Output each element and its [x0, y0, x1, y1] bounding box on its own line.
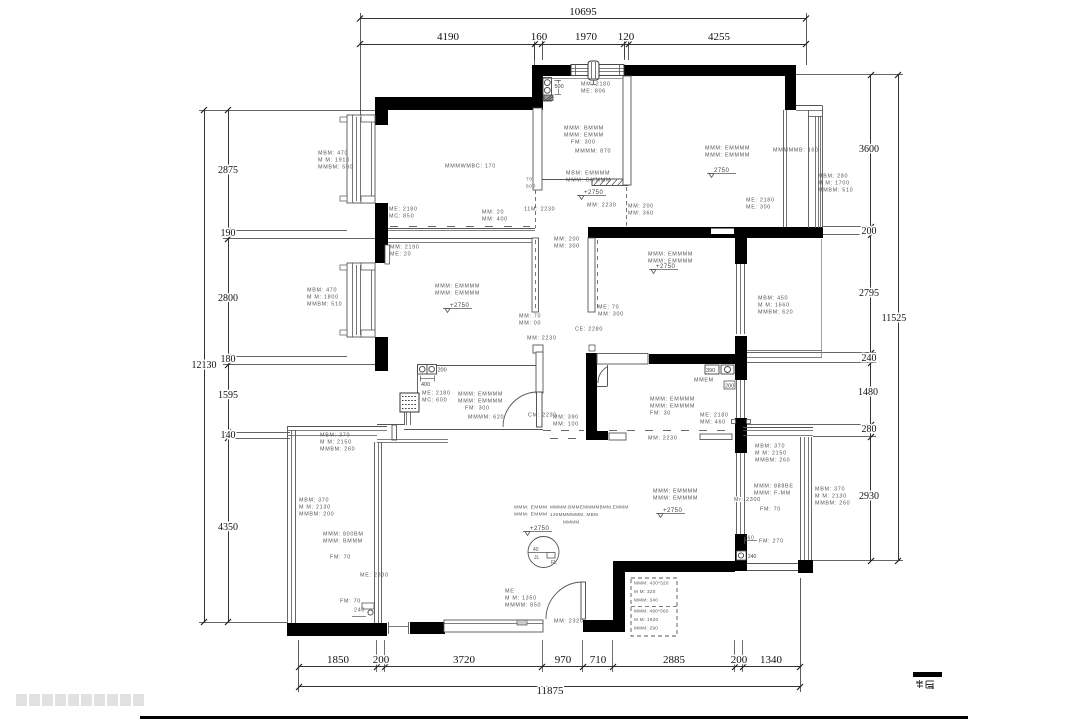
svg-text:MMEM: MMEM: [694, 377, 714, 383]
svg-text:M M: 2150: M M: 2150: [755, 451, 787, 457]
svg-text:MMM: EMMM: MMM: EMMM: [514, 504, 547, 510]
svg-text:M M: 1700: M M: 1700: [818, 181, 850, 187]
svg-text:600: 600: [526, 183, 536, 189]
svg-text:MM: 20: MM: 20: [482, 209, 504, 215]
svg-text:ME: 2180: ME: 2180: [700, 412, 729, 418]
svg-text:MBM: 370: MBM: 370: [299, 497, 329, 503]
svg-text:MMBM: 620: MMBM: 620: [758, 310, 793, 316]
svg-text:M M: 2130: M M: 2130: [815, 494, 847, 500]
svg-text:MMM: EMMM: MMM: EMMM: [564, 133, 604, 139]
svg-text:MMM: 490*360: MMM: 490*360: [634, 608, 669, 613]
svg-text:M M: 2150: M M: 2150: [320, 440, 352, 446]
svg-text:MBM: 370: MBM: 370: [815, 486, 845, 492]
svg-text:500: 500: [555, 84, 564, 90]
svg-text:70: 70: [526, 176, 533, 182]
svg-text:MMBM: 510: MMBM: 510: [818, 188, 853, 194]
svg-text:4190: 4190: [437, 31, 460, 43]
svg-text:390: 390: [706, 368, 715, 374]
svg-text:12130: 12130: [192, 360, 217, 371]
svg-text:M M: 1800: M M: 1800: [307, 295, 339, 301]
svg-text:MMM: BMMMM: MMM: BMMMM: [566, 178, 611, 184]
svg-text:11875: 11875: [536, 685, 564, 697]
svg-text:4255: 4255: [708, 31, 731, 43]
svg-text:MC: 600: MC: 600: [422, 398, 447, 404]
svg-text:ME: 2330: ME: 2330: [360, 572, 389, 578]
svg-text:MMBM: 200: MMBM: 200: [299, 512, 334, 518]
svg-text:MBM: 280: MBM: 280: [818, 173, 848, 179]
svg-text:MBM: 370: MBM: 370: [320, 432, 350, 438]
svg-text:ME: 2180: ME: 2180: [389, 206, 418, 212]
svg-text:3600: 3600: [859, 144, 879, 155]
svg-text:970: 970: [555, 654, 572, 666]
svg-text:MMM: EMMMM: MMM: EMMMM: [650, 404, 695, 410]
svg-text:4350: 4350: [218, 522, 238, 533]
svg-text:MMM: EMMMM: MMM: EMMMM: [458, 391, 503, 397]
svg-text:MMM: BMMM: MMM: BMMM: [564, 125, 604, 131]
svg-text:180: 180: [221, 354, 236, 365]
svg-text:MMM: 888BE: MMM: 888BE: [754, 483, 794, 489]
svg-text:MMMM: 620: MMMM: 620: [468, 414, 504, 420]
svg-text:2875: 2875: [218, 165, 238, 176]
svg-text:710: 710: [590, 654, 607, 666]
svg-text:M M: 1350: M M: 1350: [505, 596, 537, 602]
svg-text:FL: FL: [551, 560, 557, 566]
svg-text:FM: 300: FM: 300: [571, 139, 596, 145]
svg-text:MM: 300: MM: 300: [554, 244, 580, 250]
svg-text:160: 160: [531, 31, 548, 43]
svg-text:MMM: BMMM: MMM: BMMM: [323, 539, 363, 545]
svg-text:1595: 1595: [218, 390, 238, 401]
svg-text:MBM: 370: MBM: 370: [755, 443, 785, 449]
svg-text:120: 120: [618, 31, 635, 43]
svg-text:FM: 300: FM: 300: [465, 405, 490, 411]
svg-text:2800: 2800: [218, 293, 238, 304]
svg-text:FM: 270: FM: 270: [759, 538, 784, 544]
svg-text:MMMM: 850: MMMM: 850: [505, 603, 541, 609]
svg-text:MMM: EMMM: MMM: EMMM: [514, 512, 547, 518]
svg-text:3720: 3720: [453, 654, 476, 666]
svg-text:MMM: EMMMM: MMM: EMMMM: [650, 396, 695, 402]
svg-text:2885: 2885: [663, 654, 686, 666]
svg-text:MM: 400: MM: 400: [482, 217, 508, 223]
svg-text:MMM: EMMMM: MMM: EMMMM: [435, 283, 480, 289]
svg-text:MMM: F-MM: MMM: F-MM: [754, 491, 791, 497]
svg-text:MMBM: 260: MMBM: 260: [320, 447, 355, 453]
svg-text:MM: 00: MM: 00: [519, 321, 541, 327]
svg-text:200: 200: [862, 226, 877, 237]
svg-text:MMM: EMMMM: MMM: EMMMM: [435, 291, 480, 297]
svg-text:MM: 460: MM: 460: [700, 420, 726, 426]
svg-text:Mr: 2300: Mr: 2300: [734, 497, 761, 503]
svg-text:MM: 200: MM: 200: [628, 203, 654, 209]
svg-text:240: 240: [354, 607, 365, 613]
svg-text:ME: 806: ME: 806: [581, 89, 606, 95]
svg-text:CE: 2280: CE: 2280: [575, 326, 603, 332]
svg-text:MMM: EMMMM: MMM: EMMMM: [653, 496, 698, 502]
svg-text:MMBM: 500: MMBM: 500: [318, 165, 353, 171]
svg-text:200: 200: [438, 368, 447, 374]
svg-text:200: 200: [725, 384, 734, 390]
svg-text:240: 240: [748, 554, 757, 560]
svg-text:MM: 2320: MM: 2320: [554, 618, 584, 624]
svg-text:ME: 70: ME: 70: [598, 304, 619, 310]
svg-text:ME: 2180: ME: 2180: [746, 197, 775, 203]
svg-text:MM: 100: MM: 100: [553, 422, 579, 428]
svg-text:M M: 1910: M M: 1910: [318, 158, 350, 164]
svg-text:400: 400: [421, 382, 430, 388]
svg-text:M M: 1920: M M: 1920: [634, 617, 659, 622]
svg-text:MM: 2190: MM: 2190: [390, 244, 420, 250]
svg-text:MMM: 800BM: MMM: 800BM: [323, 531, 364, 537]
svg-text:2930: 2930: [859, 491, 879, 502]
svg-text:MMBM: 510: MMBM: 510: [307, 302, 342, 308]
svg-text:280: 280: [862, 424, 877, 435]
svg-text:260: 260: [744, 535, 754, 541]
svg-text:MM: 70: MM: 70: [519, 313, 541, 319]
svg-text:11M: 2230: 11M: 2230: [524, 206, 555, 212]
svg-text:MMM: EMMMM: MMM: EMMMM: [705, 145, 750, 151]
svg-text:MBM: EMMMM: MBM: EMMMM: [566, 170, 610, 176]
svg-text:MMMWMBC: 170: MMMWMBC: 170: [445, 163, 496, 169]
svg-text:FM: 70: FM: 70: [340, 598, 361, 604]
svg-text:ME: 2180: ME: 2180: [422, 390, 451, 396]
svg-text:M M: 1660: M M: 1660: [758, 303, 790, 309]
svg-text:130MMMMMM, MBM: 130MMMMMM, MBM: [550, 512, 598, 517]
svg-text:MBM: 450: MBM: 450: [758, 295, 788, 301]
svg-text:MBM: 470: MBM: 470: [318, 150, 348, 156]
svg-text:M M: 2130: M M: 2130: [299, 505, 331, 511]
svg-text:1850: 1850: [327, 654, 350, 666]
svg-text:MMM: EMMMM: MMM: EMMMM: [458, 399, 503, 405]
svg-text:MM: 2230: MM: 2230: [527, 335, 557, 341]
svg-text:MM: 360: MM: 360: [628, 211, 654, 217]
svg-text:MMM: EMMMM: MMM: EMMMM: [653, 488, 698, 494]
svg-text:40: 40: [533, 547, 539, 553]
svg-text:JL: JL: [534, 555, 540, 561]
svg-text:MMM: 430*320: MMM: 430*320: [634, 580, 669, 585]
svg-text:200: 200: [373, 654, 390, 666]
svg-text:MM: 2230: MM: 2230: [587, 202, 617, 208]
svg-text:MMMM: 870: MMMM: 870: [575, 148, 611, 154]
svg-text:1970: 1970: [575, 31, 598, 43]
svg-text:2795: 2795: [859, 288, 879, 299]
svg-text:ME: ME: [505, 588, 515, 594]
svg-text:MMM: EMMMM: MMM: EMMMM: [705, 153, 750, 159]
svg-text:FM: 70: FM: 70: [760, 506, 781, 512]
svg-text:ME: 20: ME: 20: [390, 252, 411, 258]
svg-text:MM: 2180: MM: 2180: [581, 81, 611, 87]
svg-text:MBM: 470: MBM: 470: [307, 287, 337, 293]
svg-text:MM: 300: MM: 300: [598, 312, 624, 318]
svg-text:MMMMMB: 160: MMMMMB: 160: [773, 147, 819, 153]
svg-text:FM: 70: FM: 70: [330, 554, 351, 560]
svg-text:MC: 850: MC: 850: [389, 214, 414, 220]
svg-text:MM: 390: MM: 390: [553, 414, 579, 420]
svg-text:200: 200: [731, 654, 748, 666]
svg-text:ME: 300: ME: 300: [746, 205, 771, 211]
svg-text:MMBM: 260: MMBM: 260: [755, 458, 790, 464]
svg-text:FM: 30: FM: 30: [650, 411, 671, 417]
svg-text:MMM: EMMMM: MMM: EMMMM: [648, 251, 693, 257]
svg-text:190: 190: [221, 228, 236, 239]
svg-text:10695: 10695: [569, 6, 597, 18]
svg-text:MMBM: 260: MMBM: 260: [815, 501, 850, 507]
svg-text:1340: 1340: [760, 654, 783, 666]
svg-text:1480: 1480: [858, 387, 878, 398]
svg-text:MMMM:BMMEMMMMBMM,EMMM: MMMM:BMMEMMMMBMM,EMMM: [550, 504, 629, 509]
svg-text:MM: 2230: MM: 2230: [648, 435, 678, 441]
svg-text:140: 140: [221, 430, 236, 441]
svg-text:MMM: 290: MMM: 290: [634, 626, 658, 631]
svg-text:11525: 11525: [882, 313, 907, 324]
svg-text:MMM: 340: MMM: 340: [634, 598, 658, 603]
svg-text:M M: 320: M M: 320: [634, 589, 656, 594]
svg-text:240: 240: [862, 353, 877, 364]
svg-text:MMMM: MMMM: [563, 519, 580, 524]
svg-text:MM: 200: MM: 200: [554, 236, 580, 242]
